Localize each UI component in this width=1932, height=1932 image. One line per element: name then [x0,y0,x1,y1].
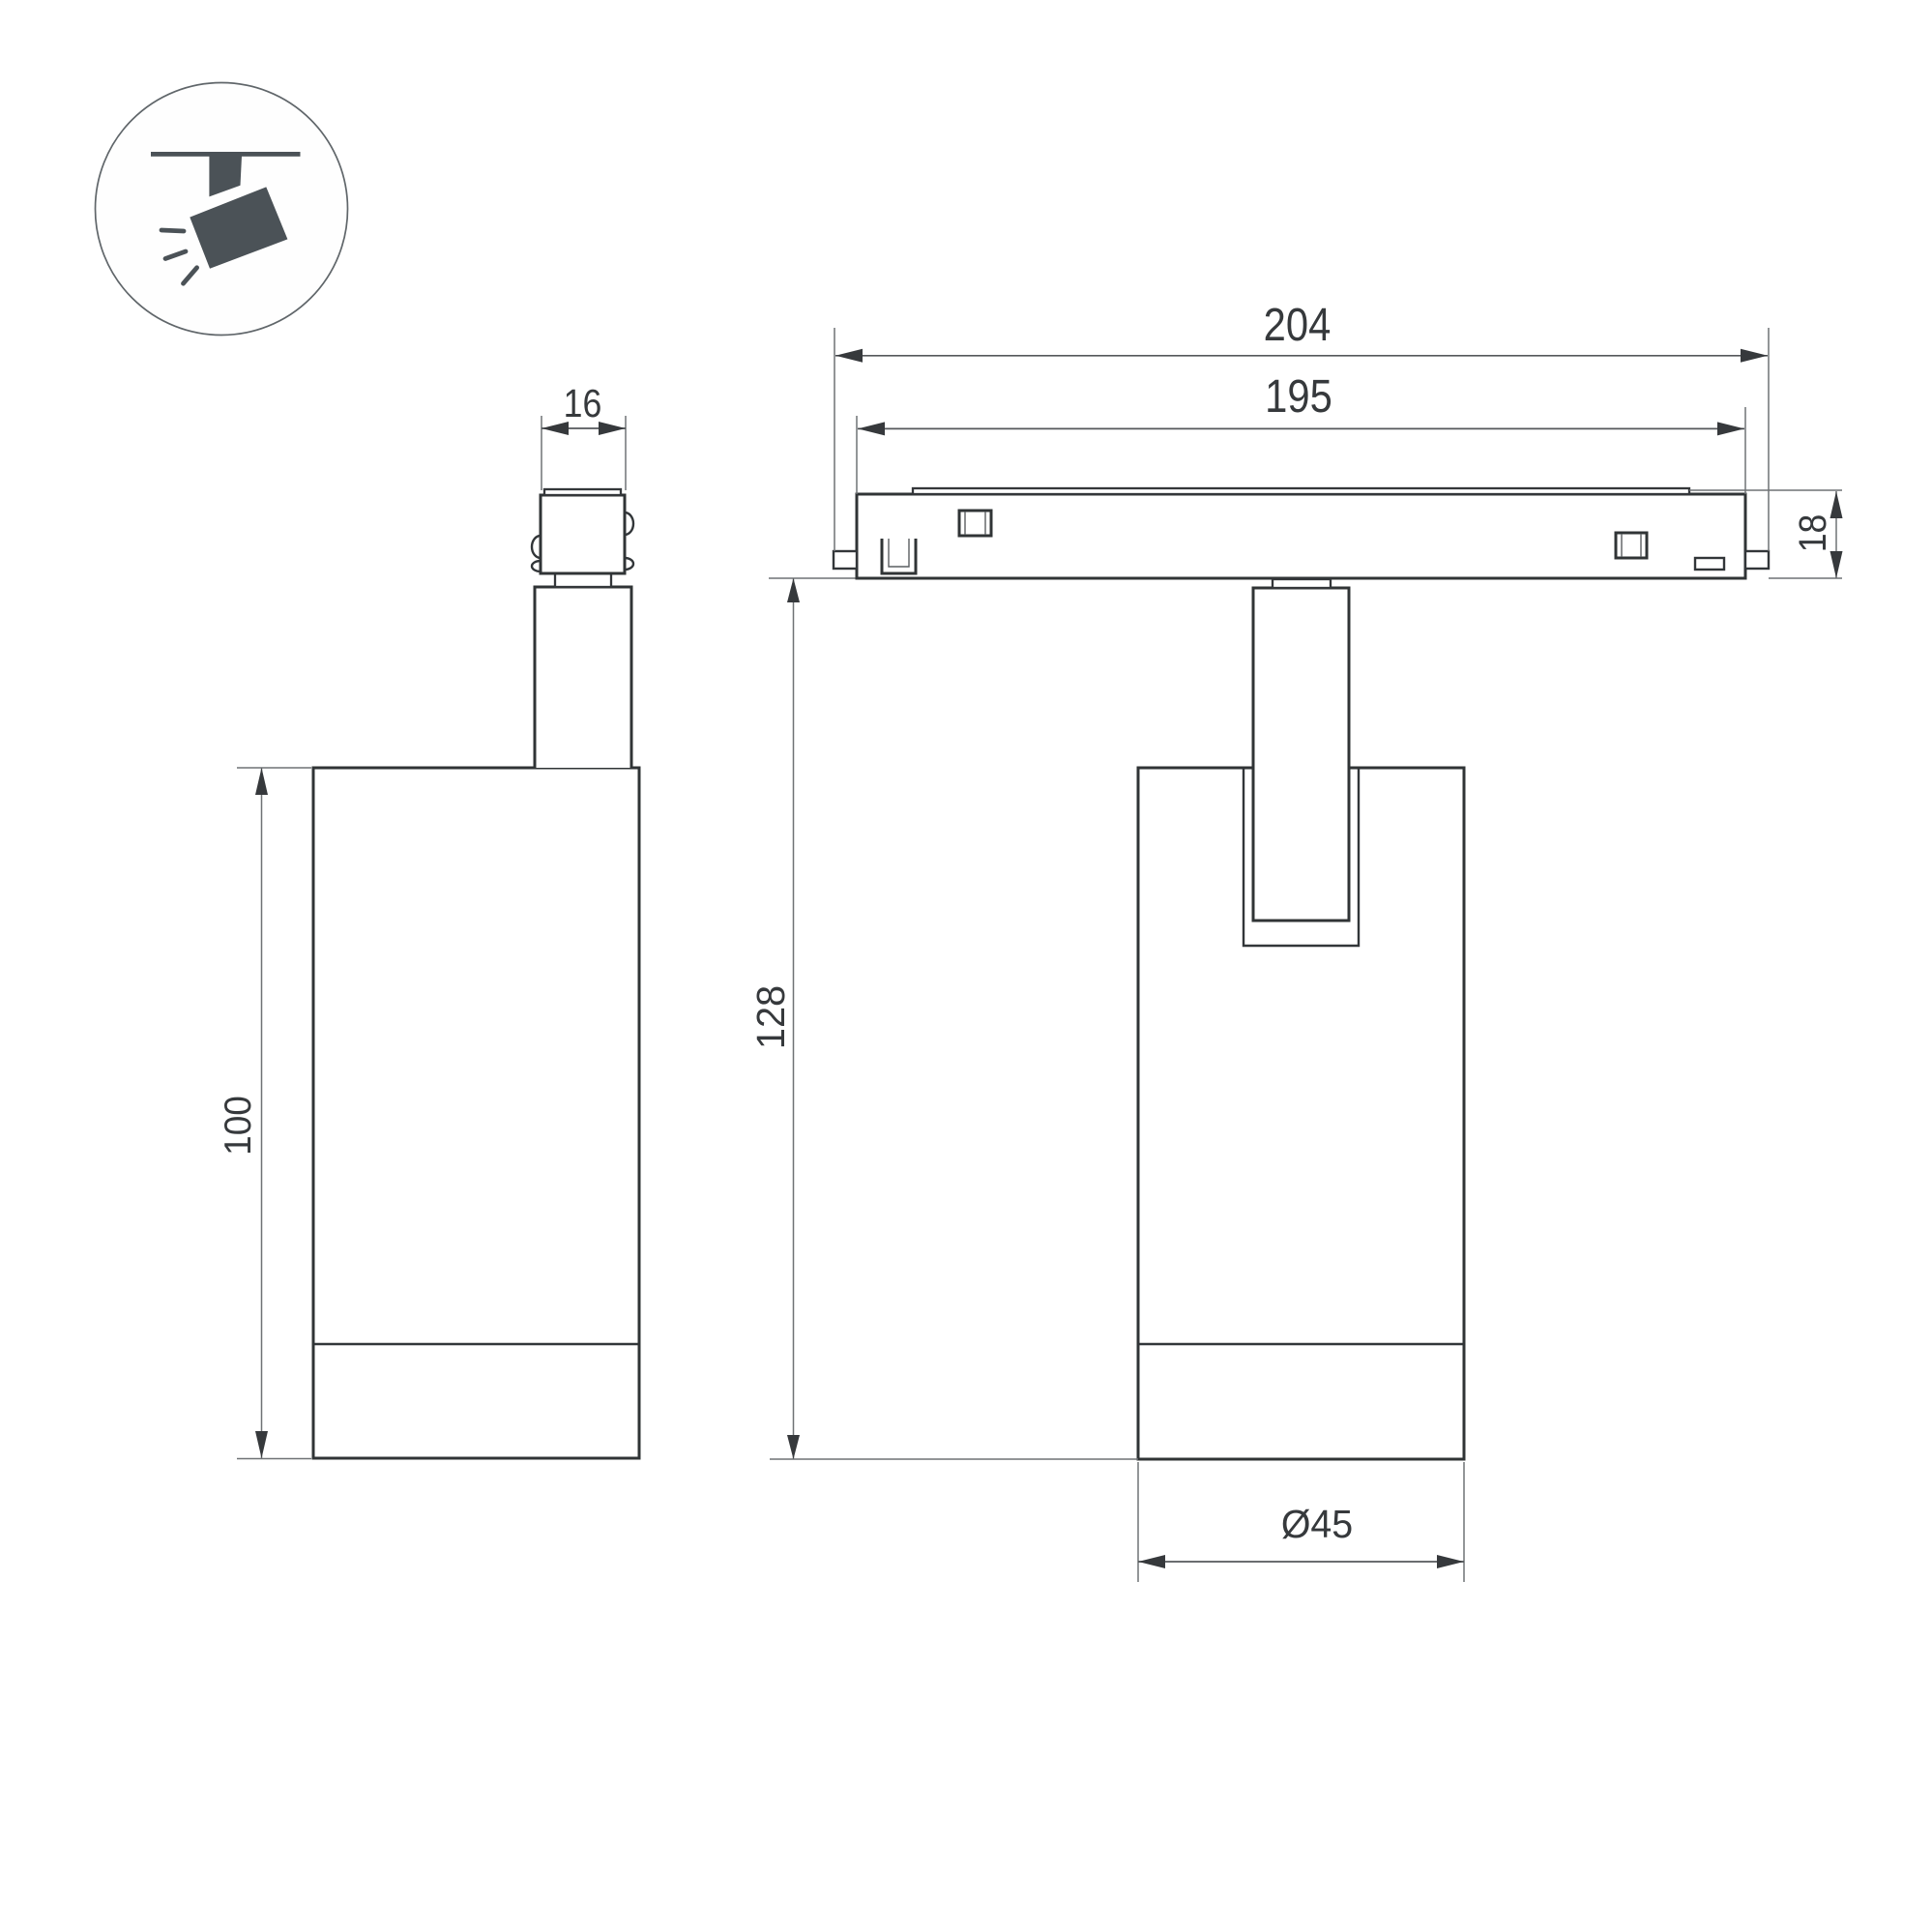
svg-text:195: 195 [1265,369,1332,422]
svg-text:16: 16 [564,382,602,426]
svg-text:100: 100 [218,1096,259,1156]
svg-text:204: 204 [1264,298,1332,350]
svg-text:128: 128 [747,985,793,1049]
svg-text:Ø45: Ø45 [1281,1502,1353,1546]
svg-text:18: 18 [1792,514,1834,553]
